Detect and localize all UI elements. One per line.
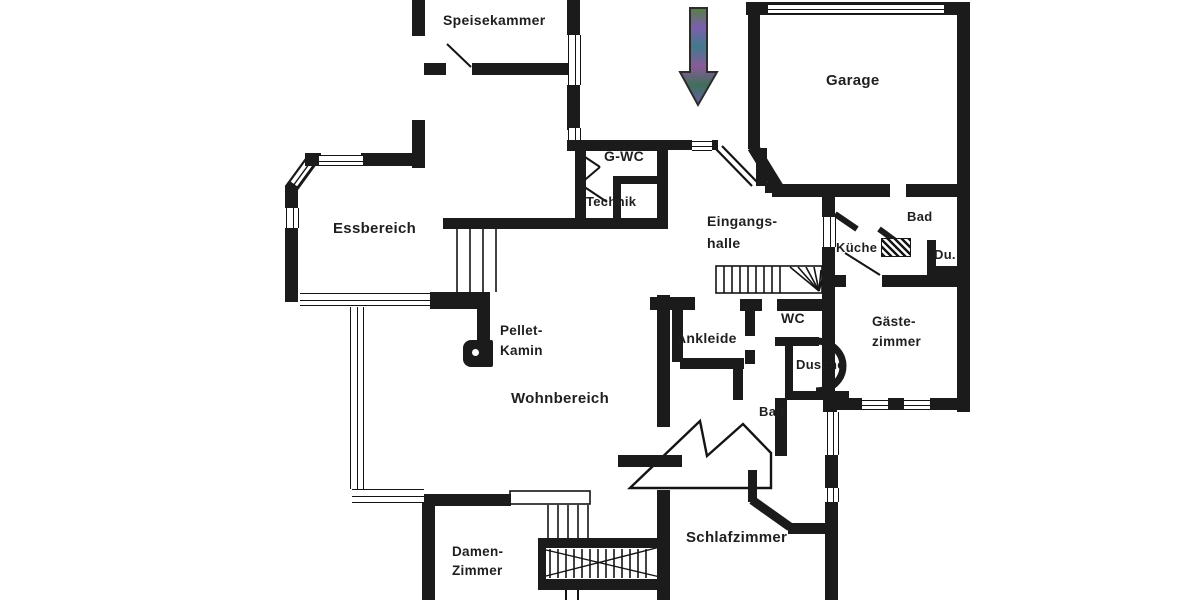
label-line: Kamin <box>500 341 543 361</box>
window-segment <box>827 412 839 455</box>
window-segment <box>862 400 888 410</box>
window-segment <box>823 217 836 247</box>
label-line: Gäste- <box>872 314 916 329</box>
wall-segment <box>567 0 580 35</box>
room-label-eingangshalle: Eingangs- halle <box>707 210 777 254</box>
wall-segment <box>657 490 670 600</box>
window-segment <box>352 489 424 503</box>
room-label-essbereich: Essbereich <box>333 220 416 237</box>
wall-segment <box>906 184 958 197</box>
room-label-ankleide: Ankleide <box>676 330 737 346</box>
wall-segment <box>575 151 586 228</box>
wall-segment <box>680 358 744 369</box>
label-line: halle <box>707 232 777 254</box>
wall-segment <box>430 292 490 309</box>
wall-segment <box>785 391 849 400</box>
window-segment <box>692 141 712 151</box>
wall-segment <box>538 538 664 548</box>
room-label-bad-center: Bad <box>759 405 784 420</box>
window-segment <box>827 488 839 502</box>
wall-segment <box>822 275 846 287</box>
label-line: Pellet- <box>500 323 543 338</box>
wall-segment <box>788 523 828 534</box>
room-label-wohnbereich: Wohnbereich <box>511 390 609 407</box>
wall-segment <box>443 218 668 229</box>
wall-segment <box>748 2 760 149</box>
wall-segment <box>733 369 743 400</box>
wall-segment <box>422 506 435 600</box>
wall-segment <box>361 153 424 166</box>
wall-segment <box>657 295 670 427</box>
wall-segment <box>472 63 575 75</box>
wall-segment <box>748 470 757 502</box>
kitchen-counter-icon <box>881 238 911 257</box>
room-label-kueche: Küche <box>836 241 877 256</box>
wall-segment <box>882 275 970 287</box>
wall-segment <box>412 0 425 36</box>
wall-segment <box>567 85 580 130</box>
stove-flue-dot <box>472 349 479 356</box>
door-icon <box>845 253 880 275</box>
level-divider-steps <box>457 229 496 292</box>
window-segment <box>768 4 944 14</box>
window-segment <box>319 155 363 166</box>
wall-segment <box>888 398 904 410</box>
window-segment <box>568 35 581 85</box>
room-label-pellet-kamin: Pellet- Kamin <box>500 321 543 361</box>
label-line: Eingangs- <box>707 213 777 229</box>
label-line: Damen- <box>452 544 503 559</box>
wall-segment <box>285 228 298 302</box>
room-label-dusche: Dusche <box>796 358 845 373</box>
wall-segment <box>825 502 838 600</box>
wall-segment <box>745 310 755 336</box>
wall-segment <box>477 309 490 342</box>
room-label-gaestezimmer: Gäste- zimmer <box>872 312 921 352</box>
wall-segment <box>424 63 446 75</box>
entrance-arrow-icon <box>680 8 717 105</box>
pellet-stove-icon <box>463 340 493 367</box>
window-segment <box>286 208 299 228</box>
window-segment <box>300 293 430 306</box>
floor-plan: Speisekammer Garage G-WC Technik Essbere… <box>0 0 1200 600</box>
wall-segment <box>538 538 546 590</box>
room-label-du: Du. <box>934 248 956 263</box>
room-label-damenzimmer: Damen- Zimmer <box>452 542 503 580</box>
room-label-schlafzimmer: Schlafzimmer <box>686 529 787 546</box>
plan-linework <box>0 0 1200 600</box>
wall-segment <box>822 247 835 400</box>
room-label-g-wc: G-WC <box>604 148 644 164</box>
wall-segment <box>538 579 664 590</box>
window-segment <box>568 128 581 140</box>
wall-segment <box>756 148 767 186</box>
wall-segment <box>657 151 668 228</box>
room-label-technik: Technik <box>586 195 636 210</box>
wall-segment <box>775 337 819 346</box>
wall-segment <box>930 398 970 410</box>
wall-segment <box>422 494 511 506</box>
room-label-speisekammer: Speisekammer <box>443 12 545 28</box>
wall-segment <box>668 140 692 150</box>
window-segment <box>350 307 364 489</box>
wall-segment <box>822 184 835 217</box>
room-label-bad-top: Bad <box>907 210 932 225</box>
wall-segment <box>785 342 793 398</box>
room-label-wc: WC <box>781 310 805 326</box>
window-segment <box>904 400 930 410</box>
entry-winder-staircase <box>716 266 822 293</box>
door-icon <box>447 44 471 67</box>
label-line: Zimmer <box>452 561 503 580</box>
wall-segment <box>823 398 837 412</box>
wall-segment <box>618 455 682 467</box>
wall-segment <box>712 140 718 150</box>
wall-segment <box>752 500 790 527</box>
wall-segment <box>745 350 755 364</box>
wall-segment <box>957 2 970 412</box>
wall-segment <box>285 186 298 208</box>
label-line: zimmer <box>872 332 921 352</box>
room-label-garage: Garage <box>826 72 880 89</box>
wall-segment <box>825 455 838 488</box>
